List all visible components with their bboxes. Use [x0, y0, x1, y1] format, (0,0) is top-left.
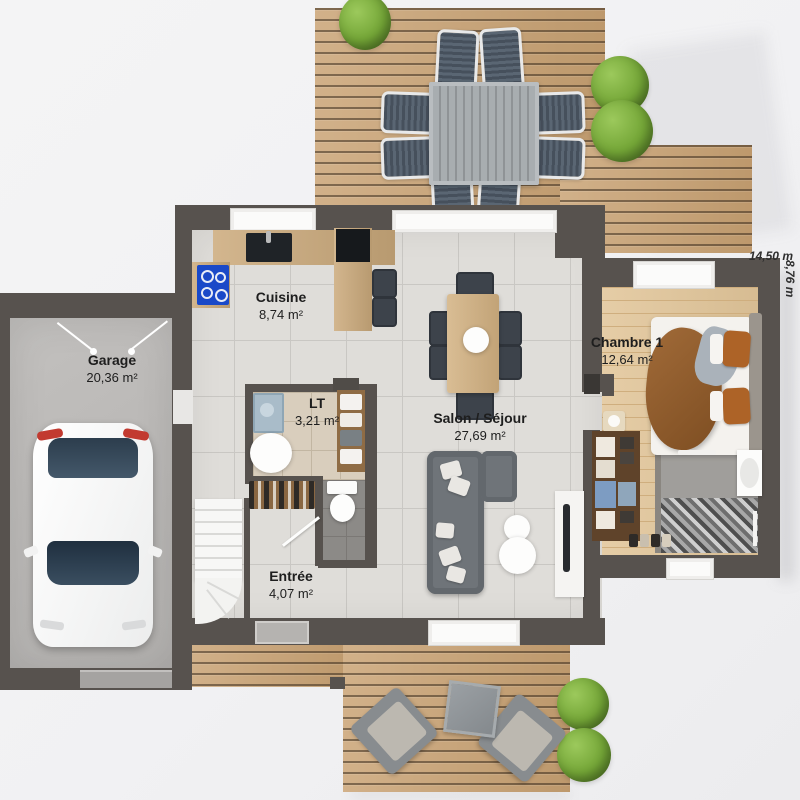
- coffee-table: [499, 537, 536, 574]
- wall-door-jamb: [602, 374, 614, 396]
- burner: [201, 270, 214, 283]
- bed-headboard: [749, 313, 762, 459]
- bar-stool: [372, 269, 397, 298]
- room-area: 4,07 m²: [231, 586, 351, 602]
- burner: [215, 272, 226, 283]
- car-headlight: [122, 619, 147, 630]
- ensuite-basin: [740, 458, 759, 488]
- car: [33, 423, 153, 647]
- room-label-salon: Salon / Séjour 27,69 m²: [400, 410, 560, 444]
- shower-mosaic-floor: [661, 498, 758, 553]
- folded-clothes: [596, 511, 615, 529]
- shoes: [651, 534, 660, 547]
- wall-left: [175, 205, 192, 645]
- folded-clothes: [596, 437, 615, 457]
- room-label-lt: LT 3,21 m²: [277, 395, 357, 429]
- car-headlight: [40, 619, 65, 630]
- wall-toilet-bottom: [318, 560, 377, 568]
- tv: [563, 504, 570, 572]
- room-label-entree: Entrée 4,07 m²: [231, 568, 351, 602]
- faucet: [266, 231, 271, 243]
- sofa-chaise: [481, 451, 517, 502]
- room-label-garage: Garage 20,36 m²: [52, 352, 172, 386]
- storage-basket: [340, 430, 362, 446]
- outdoor-table: [429, 82, 539, 185]
- tree: [591, 100, 653, 162]
- car-windshield: [47, 541, 139, 585]
- wall-bottom: [175, 618, 605, 645]
- shelf-item: [618, 482, 636, 506]
- room-area: 3,21 m²: [277, 413, 357, 429]
- ground-shadow: [778, 270, 794, 580]
- room-label-cuisine: Cuisine 8,74 m²: [221, 289, 341, 323]
- tree: [557, 678, 609, 730]
- room-name: Salon / Séjour: [400, 410, 560, 428]
- room-name: Entrée: [231, 568, 351, 586]
- living-bay-window: [392, 210, 557, 233]
- folded-clothes: [596, 460, 615, 478]
- room-name: Cuisine: [221, 289, 341, 307]
- bed-pillow: [722, 330, 751, 368]
- bar-stool: [372, 297, 397, 327]
- bedroom-window-top: [633, 261, 715, 289]
- toilet-tank: [327, 481, 357, 494]
- shelf-item: [620, 437, 634, 449]
- bed-cushion: [710, 391, 723, 421]
- wall-lt-right: [365, 384, 377, 566]
- car-rear-window: [48, 438, 138, 478]
- wall-closet-right: [315, 478, 323, 566]
- living-window-bottom: [428, 620, 520, 646]
- bed-cushion: [710, 334, 723, 364]
- room-area: 27,69 m²: [400, 428, 560, 444]
- bedside-lamp: [608, 415, 620, 427]
- front-door: [255, 621, 309, 644]
- room-name: Garage: [52, 352, 172, 370]
- folded-clothes: [595, 481, 616, 508]
- bedroom-door: [584, 374, 600, 394]
- coat-rack: [249, 481, 315, 509]
- room-area: 12,64 m²: [565, 352, 689, 368]
- towel-stack: [340, 449, 362, 464]
- wall-lt-left: [245, 384, 253, 484]
- room-name: Chambre 1: [565, 334, 689, 352]
- shoes: [629, 534, 638, 547]
- garage-kitchen-door: [173, 390, 193, 424]
- bedside-table: [603, 411, 625, 432]
- table-centerpiece: [463, 327, 489, 353]
- shelf-item: [620, 452, 634, 464]
- sofa-pillow: [435, 522, 454, 539]
- room-area: 8,74 m²: [221, 307, 341, 323]
- lt-washbasin: [250, 433, 292, 473]
- shelf-item: [620, 511, 634, 523]
- towel-rail: [753, 511, 757, 546]
- machine-drum: [260, 403, 274, 417]
- burner: [201, 287, 213, 299]
- dimension-height: 8,76 m: [783, 260, 797, 297]
- kitchen-sink: [246, 233, 292, 262]
- room-name: LT: [277, 395, 357, 413]
- dining-chair: [497, 311, 522, 346]
- shoes: [640, 534, 649, 547]
- bed-pillow: [722, 387, 751, 424]
- bedroom-window-bottom: [666, 558, 714, 580]
- garage-door: [80, 670, 172, 688]
- room-area: 20,36 m²: [52, 370, 172, 386]
- room-label-chambre: Chambre 1 12,64 m²: [565, 334, 689, 368]
- kitchen-appliance: [336, 229, 370, 262]
- deck-post: [330, 677, 345, 689]
- shoes: [662, 534, 671, 547]
- wardrobe: [592, 431, 640, 541]
- floor-plan: Garage 20,36 m² Cuisine 8,74 m² LT 3,21 …: [0, 0, 800, 800]
- shower-bar: [678, 450, 716, 455]
- lounge-side-table: [443, 680, 501, 738]
- toilet-bowl: [330, 494, 355, 522]
- ensuite-vanity: [737, 450, 762, 496]
- dining-chair: [497, 345, 522, 380]
